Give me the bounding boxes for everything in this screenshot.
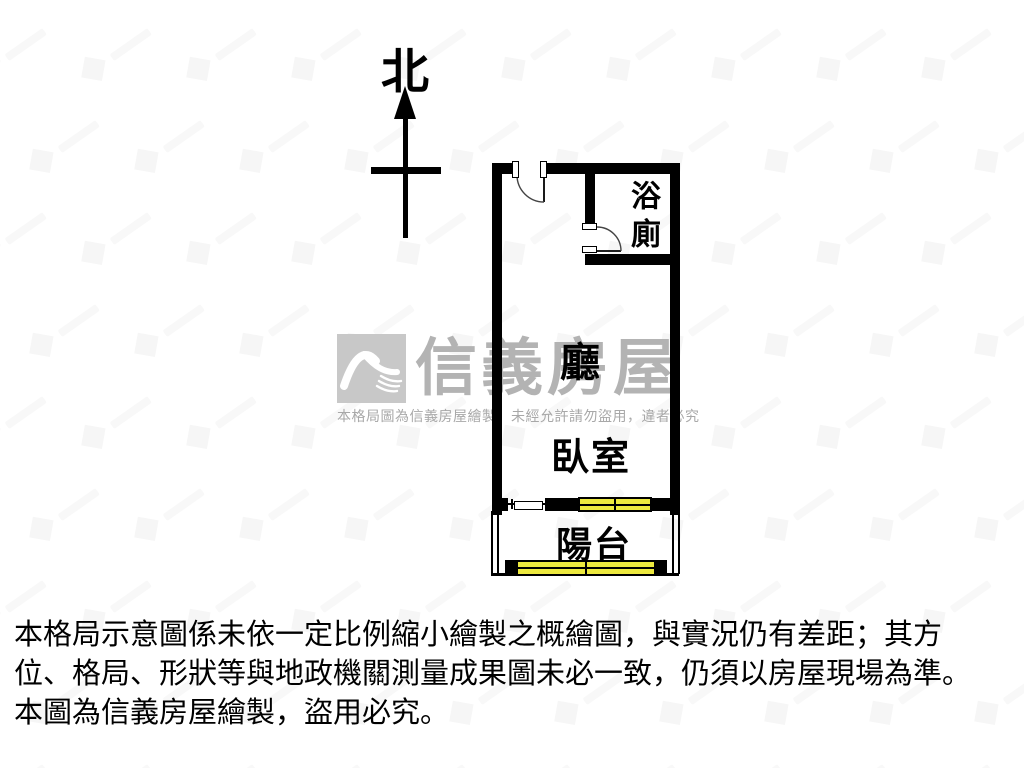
bathroom-door-jamb-bottom <box>582 246 597 253</box>
balcony-rail-left <box>491 511 499 574</box>
sinyi-logo-icon <box>337 334 406 403</box>
entrance-door-jamb-left <box>512 161 519 178</box>
entrance-door-jamb-right <box>540 161 547 178</box>
north-arrow-crossbar <box>371 167 441 174</box>
window-divider <box>614 499 616 510</box>
bathroom-door-jamb-top <box>582 223 597 230</box>
bathroom-door-arc <box>597 227 621 251</box>
watermark-notice-text: 本格局圖為信義房屋繪製，未經允許請勿盜用，違者必究 <box>337 406 717 426</box>
sliding-door-panel <box>514 501 543 510</box>
balcony-rail-right <box>672 511 680 574</box>
sliding-door-stop <box>511 499 513 509</box>
bedroom-balcony-window <box>578 497 652 512</box>
balcony-window-cap-left <box>505 560 518 576</box>
wall-bedroom-bottom-mid <box>545 498 581 511</box>
room-label-balcony: 陽台 <box>556 516 632 568</box>
entrance-door-arc <box>517 175 544 202</box>
disclaimer-line-3: 本圖為信義房屋繪製，盜用必究。 <box>14 694 1014 733</box>
room-label-living: 廳 <box>560 330 600 388</box>
disclaimer-line-2: 位、格局、形狀等與地政機關測量成果圖未必一致，仍須以房屋現場為準。 <box>14 655 1014 694</box>
room-label-bedroom: 臥室 <box>551 426 631 481</box>
wall-bedroom-bottom-right <box>649 498 680 511</box>
floorplan-image: 北 信義房屋 本格局圖為信義房屋繪製，未經允許請勿盜用，違者必究 <box>0 0 1024 768</box>
room-label-bathroom: 浴廁 <box>620 180 664 256</box>
balcony-window-cap-right <box>654 560 667 576</box>
disclaimer-line-1: 本格局示意圖係未依一定比例縮小繪製之概繪圖，與實況仍有差距；其方 <box>14 616 1014 655</box>
disclaimer-text: 本格局示意圖係未依一定比例縮小繪製之概繪圖，與實況仍有差距；其方 位、格局、形狀… <box>14 616 1014 733</box>
